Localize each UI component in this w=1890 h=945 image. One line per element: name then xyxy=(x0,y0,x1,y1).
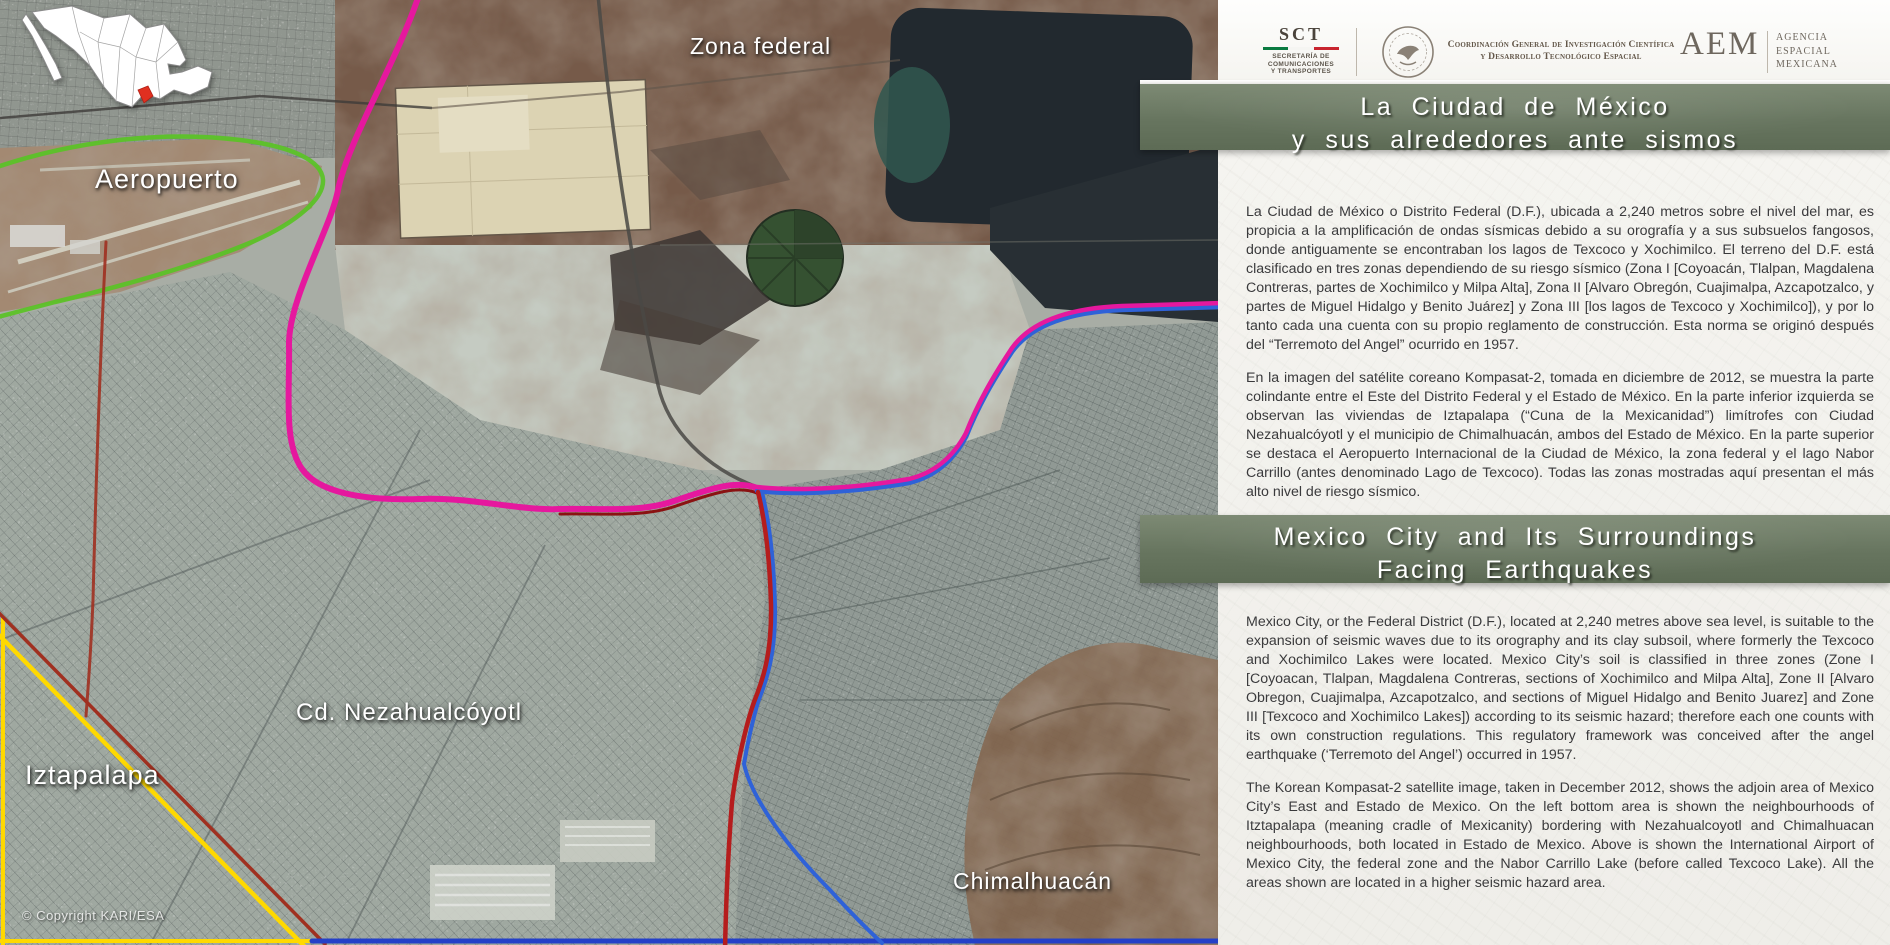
body-text-spanish: La Ciudad de México o Distrito Federal (… xyxy=(1246,203,1874,516)
aem-logo: AEM xyxy=(1680,26,1759,63)
map-label-nezahualcoyotl: Cd. Nezahualcóyotl xyxy=(296,699,522,727)
title-en-line-1: Mexico City and Its Surroundings xyxy=(1140,523,1890,552)
paragraph-es-1: La Ciudad de México o Distrito Federal (… xyxy=(1246,203,1874,355)
sct-logo: SCT SECRETARÍA DE COMUNICACIONES Y TRANS… xyxy=(1256,24,1346,76)
sct-acronym: SCT xyxy=(1256,24,1346,45)
copyright-notice: © Copyright KARI/ESA xyxy=(22,908,164,923)
coordination-title: Coordinación General de Investigación Ci… xyxy=(1446,40,1676,63)
coordination-line-1: Coordinación General de Investigación Ci… xyxy=(1446,40,1676,52)
header-divider xyxy=(1356,28,1357,76)
map-label-chimalhuacan: Chimalhuacán xyxy=(953,868,1112,895)
body-text-english: Mexico City, or the Federal District (D.… xyxy=(1246,613,1874,907)
title-banner-spanish: La Ciudad de México y sus alrededores an… xyxy=(1140,84,1890,150)
sct-line-2: COMUNICACIONES xyxy=(1256,61,1346,69)
satellite-map: Zona federal Aeropuerto Iztapalapa Cd. N… xyxy=(0,0,1218,945)
sct-line-3: Y TRANSPORTES xyxy=(1256,68,1346,76)
mexico-inset-map xyxy=(20,2,225,144)
title-es-line-1: La Ciudad de México xyxy=(1140,93,1890,122)
aem-name: AGENCIA ESPACIAL MEXICANA xyxy=(1776,31,1838,72)
poster: Zona federal Aeropuerto Iztapalapa Cd. N… xyxy=(0,0,1890,945)
mexico-seal-icon xyxy=(1380,24,1436,80)
aem-line-3: MEXICANA xyxy=(1776,58,1838,72)
aem-divider xyxy=(1767,31,1768,73)
map-label-iztapalapa: Iztapalapa xyxy=(25,760,160,791)
sct-flag-bar xyxy=(1263,47,1339,50)
sct-line-1: SECRETARÍA DE xyxy=(1256,53,1346,61)
map-label-zona-federal: Zona federal xyxy=(690,33,831,60)
title-es-line-2: y sus alrededores ante sismos xyxy=(1140,126,1890,155)
title-en-line-2: Facing Earthquakes xyxy=(1140,556,1890,585)
map-label-aeropuerto: Aeropuerto xyxy=(95,164,239,195)
aem-line-2: ESPACIAL xyxy=(1776,45,1838,59)
panel-header: SCT SECRETARÍA DE COMUNICACIONES Y TRANS… xyxy=(1218,0,1890,84)
paragraph-en-2: The Korean Kompasat-2 satellite image, t… xyxy=(1246,779,1874,893)
aem-line-1: AGENCIA xyxy=(1776,31,1838,45)
title-banner-english: Mexico City and Its Surroundings Facing … xyxy=(1140,515,1890,583)
paragraph-en-1: Mexico City, or the Federal District (D.… xyxy=(1246,613,1874,765)
paragraph-es-2: En la imagen del satélite coreano Kompas… xyxy=(1246,369,1874,502)
coordination-line-2: y Desarrollo Tecnológico Espacial xyxy=(1446,52,1676,64)
